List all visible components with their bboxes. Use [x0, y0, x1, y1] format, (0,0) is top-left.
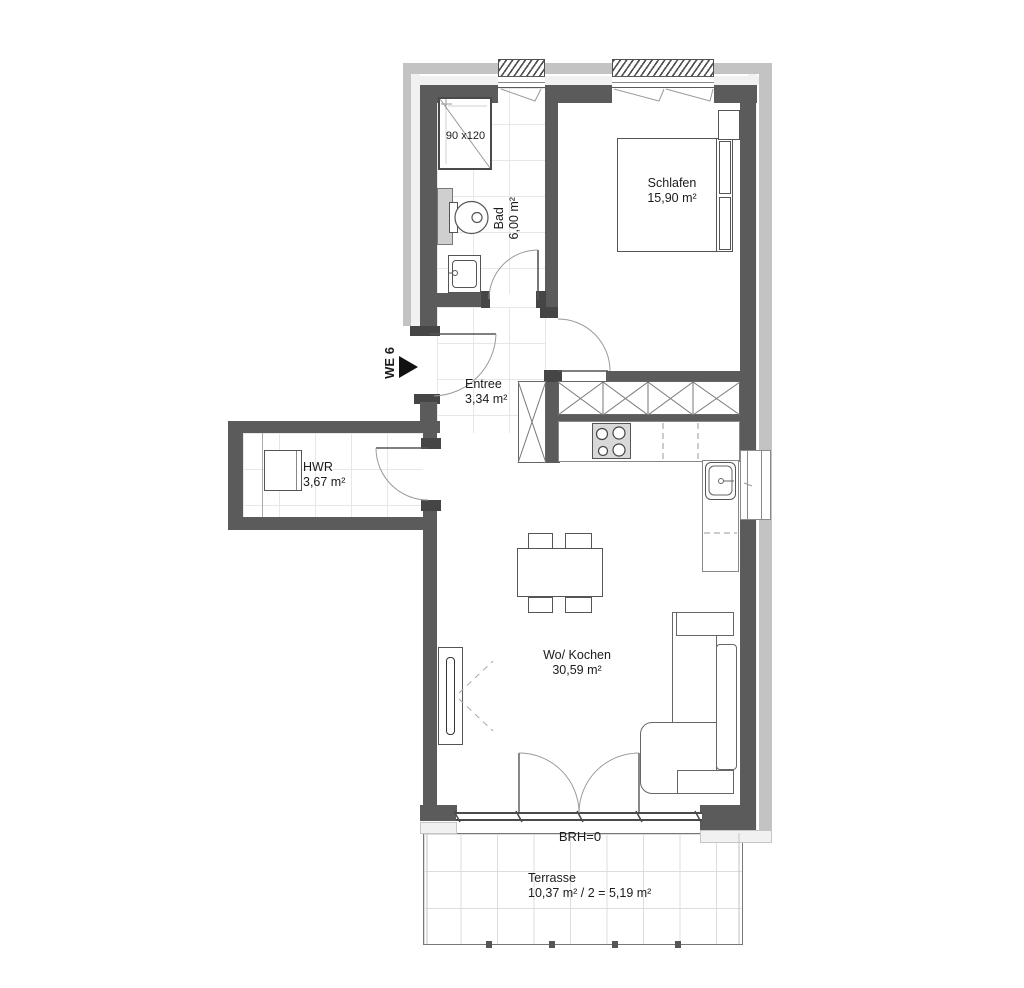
facade-top-inner — [403, 76, 772, 85]
wall-bottom-right-corner — [700, 805, 756, 830]
unit-arrow-icon — [399, 356, 418, 378]
facade-left-inner — [411, 74, 420, 326]
entry-door-jamb-top — [410, 326, 440, 336]
wall-bedroom-bottom — [606, 371, 740, 381]
wall-top-3 — [714, 85, 757, 103]
tv-viewing-lines — [459, 661, 493, 731]
facade-left-outer — [403, 74, 411, 326]
bedroom-window — [612, 76, 714, 88]
hwr-door-jamb-top — [421, 438, 441, 449]
room-area: 3,67 m² — [303, 475, 345, 490]
wall-bottom-left-corner — [420, 805, 457, 821]
facade-bottom-right — [700, 830, 772, 843]
wall-left-bath — [420, 85, 437, 326]
room-area: 30,59 m² — [517, 663, 637, 678]
room-label-hwr: HWR 3,67 m² — [303, 460, 345, 491]
bedroom-window-shutter-box — [612, 59, 714, 77]
room-area: 3,34 m² — [465, 392, 507, 407]
terrace-window-band — [456, 812, 702, 821]
sofa-cushion-top — [676, 612, 734, 636]
room-label-wo-kochen: Wo/ Kochen 30,59 m² — [517, 648, 637, 679]
kitchen-sink — [705, 462, 736, 500]
room-name: Schlafen — [612, 176, 732, 191]
room-name: Entree — [465, 377, 507, 392]
shower-size-label: 90 x120 — [440, 130, 491, 143]
wall-hwr-left — [228, 421, 243, 530]
stove — [592, 423, 631, 459]
bath-window-shutter-box — [498, 59, 545, 77]
dining-chair-3 — [528, 597, 553, 613]
room-name: HWR — [303, 460, 345, 475]
dining-chair-1 — [528, 533, 553, 549]
hwr-door-jamb-bottom — [421, 500, 441, 511]
washing-machine — [264, 450, 302, 491]
room-label-schlafen: Schlafen 15,90 m² — [612, 176, 732, 207]
room-name: Bad — [492, 183, 507, 253]
sofa-cushion-bottom — [677, 770, 734, 794]
unit-label: WE 6 — [382, 343, 398, 383]
wall-hwr-top — [228, 421, 440, 433]
room-area: 10,37 m² / 2 = 5,19 m² — [528, 886, 651, 901]
room-area: 6,00 m² — [507, 183, 522, 253]
bedside-shelf — [718, 110, 740, 140]
dining-chair-2 — [565, 533, 592, 549]
terrace-french-doors — [519, 753, 639, 813]
bath-door-jamb-left — [481, 291, 490, 308]
kitchen-window — [740, 450, 771, 520]
hwr-counter-edge — [262, 433, 263, 517]
kitchen-wall-cabinet-row — [558, 381, 740, 415]
room-area: 15,90 m² — [612, 191, 732, 206]
room-label-entree: Entree 3,34 m² — [465, 377, 507, 408]
sofa-backrest — [716, 644, 737, 770]
kitchen-tall-cabinet — [518, 381, 546, 463]
bedroom-door-jamb-top — [540, 307, 558, 318]
bedroom-door — [558, 319, 610, 371]
room-name: Terrasse — [528, 871, 651, 886]
bath-sink-basin — [452, 260, 477, 288]
wall-right-upper — [740, 103, 756, 450]
wall-hwr-bottom — [228, 517, 437, 530]
dining-chair-4 — [565, 597, 592, 613]
room-label-bad: Bad 6,00 m² — [492, 183, 523, 253]
facade-top-outer — [403, 63, 772, 74]
bath-door-jamb-right — [536, 291, 546, 308]
facade-bottom-left — [420, 822, 457, 834]
tv-screen — [446, 657, 455, 735]
wall-right-lower — [740, 520, 756, 830]
room-label-terrasse: Terrasse 10,37 m² / 2 = 5,19 m² — [528, 871, 651, 902]
dining-table — [517, 548, 603, 597]
wall-bath-bedroom-divider — [545, 85, 558, 307]
room-name: Wo/ Kochen — [517, 648, 637, 663]
bath-window — [498, 76, 545, 88]
floor-plan: Schlafen 15,90 m² Bad 6,00 m² Entree 3,3… — [0, 0, 1024, 988]
wall-living-left-lower — [423, 503, 437, 805]
facade-right-outer — [759, 63, 772, 830]
brh-annotation: BRH=0 — [545, 829, 615, 845]
kitchen-counter-top — [558, 421, 740, 462]
toilet-tank — [449, 202, 458, 233]
